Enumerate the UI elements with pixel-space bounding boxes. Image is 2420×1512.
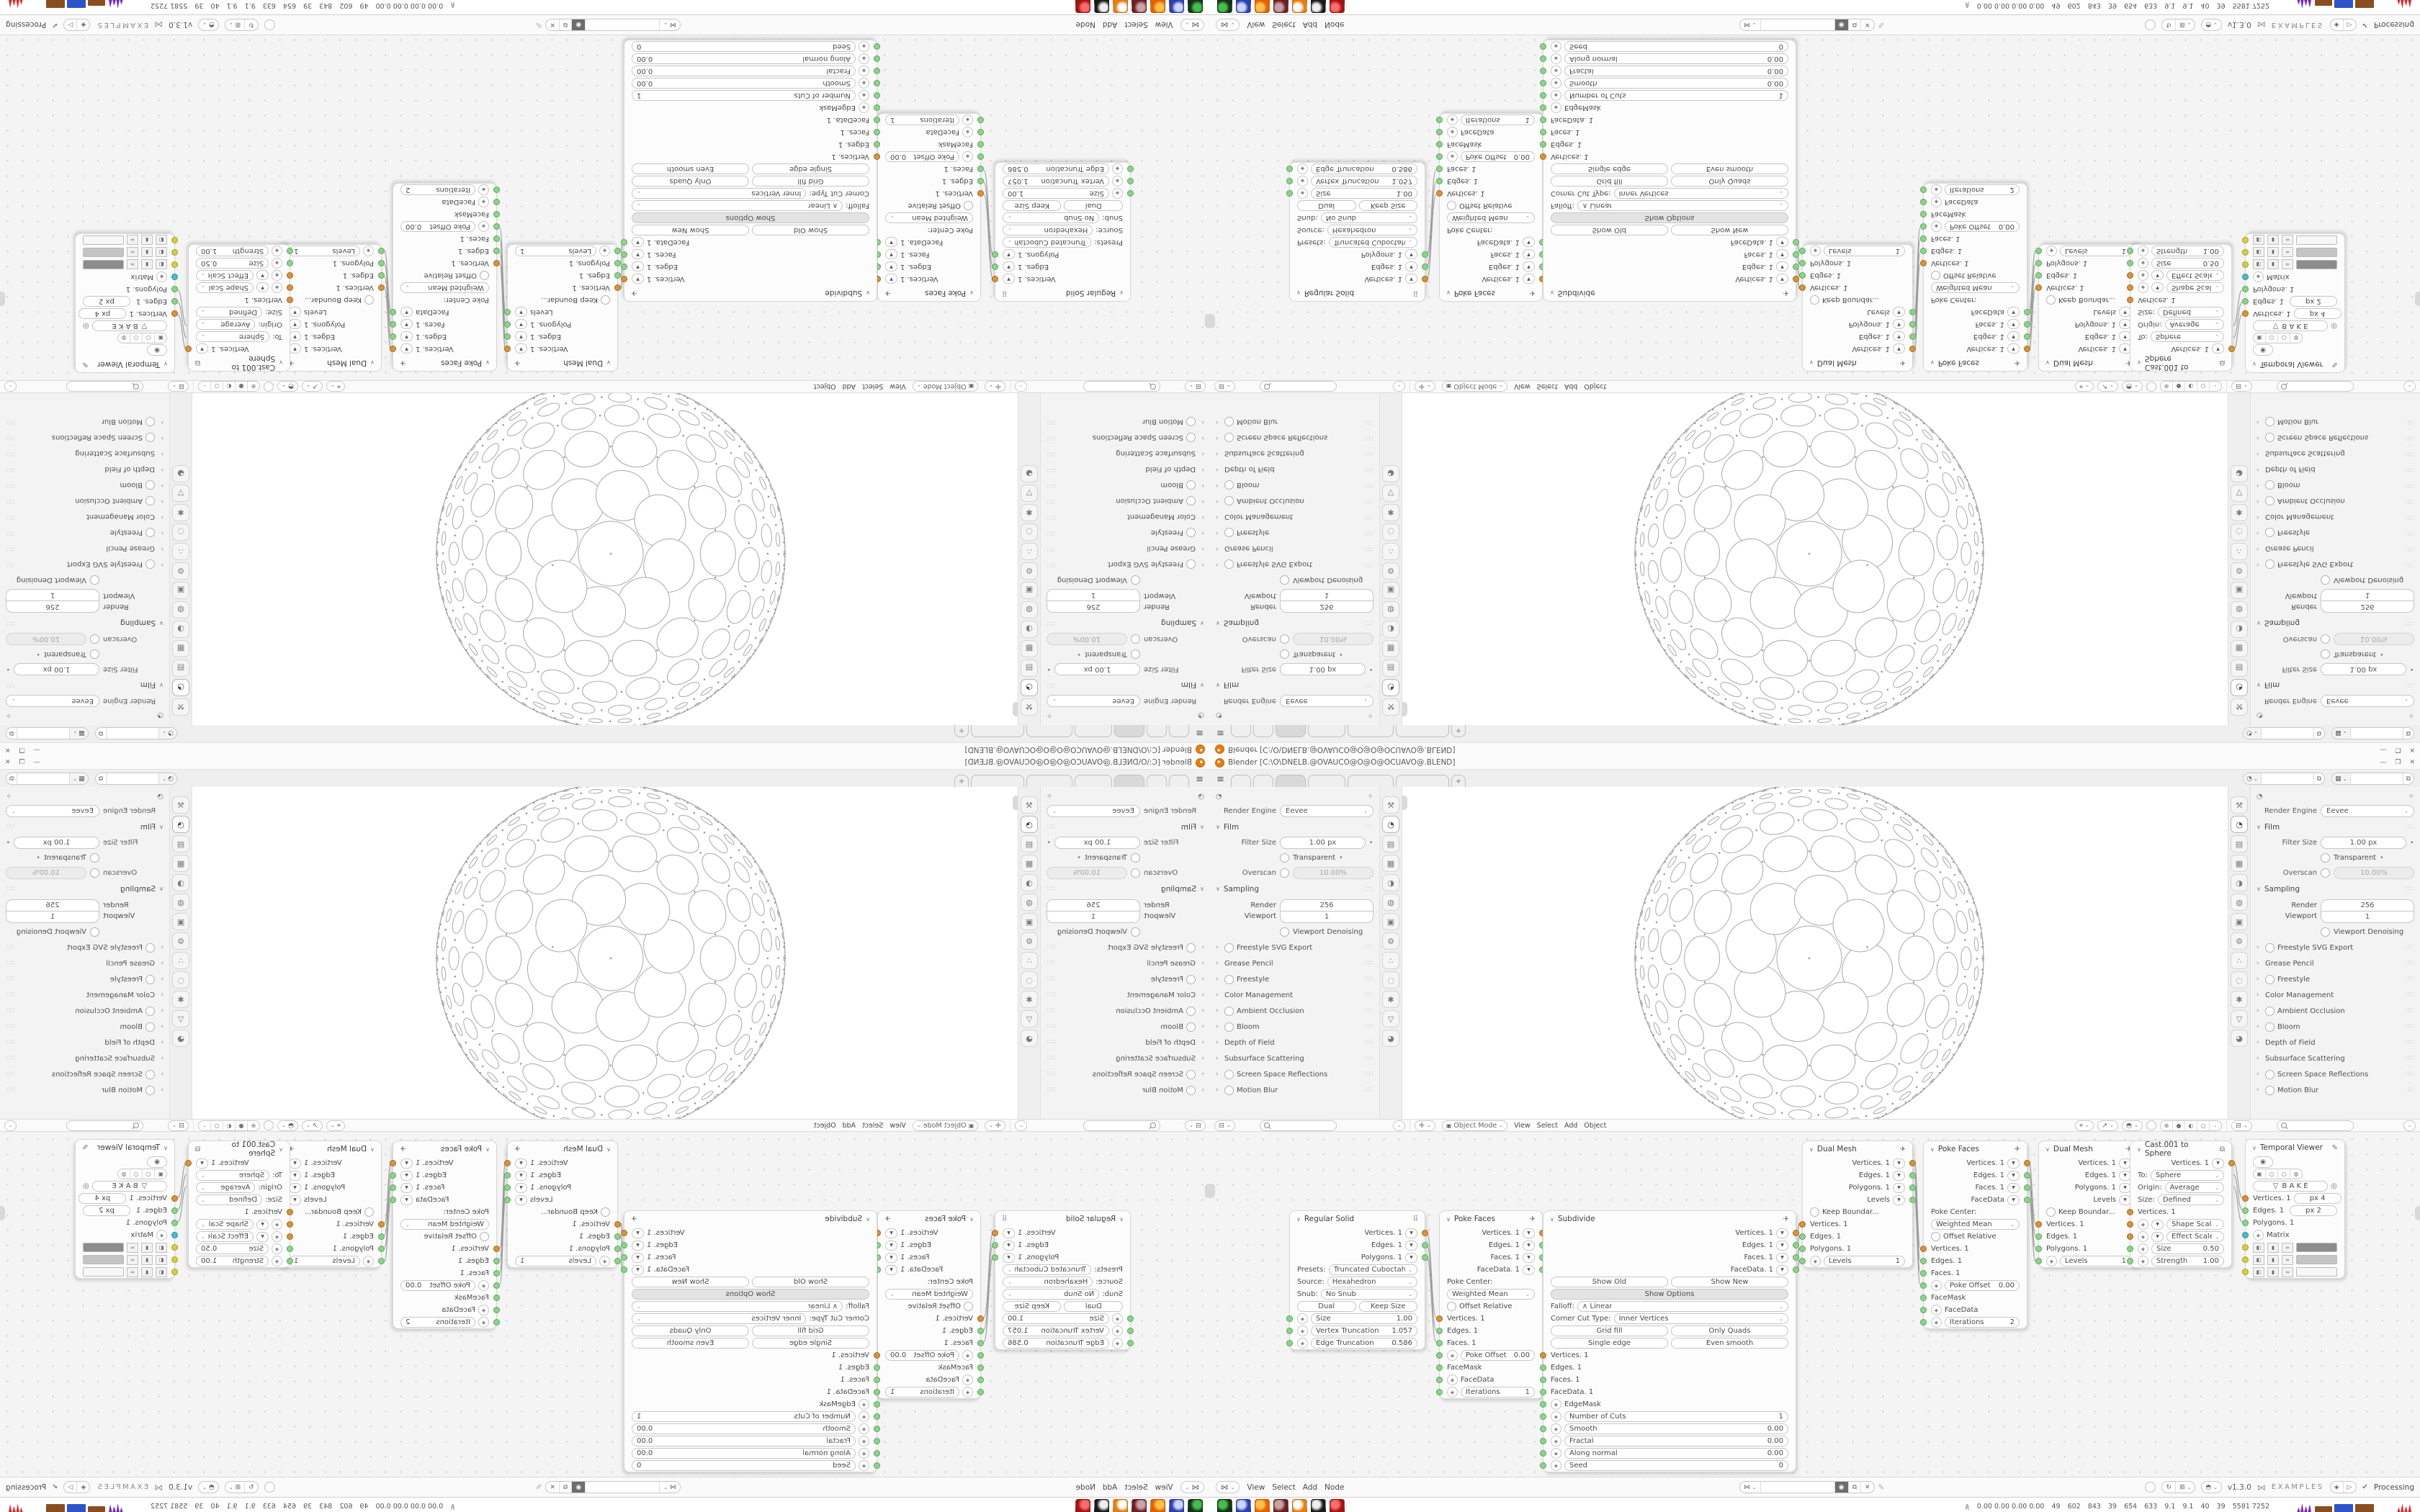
collapse-icon[interactable]: ∨: [1296, 290, 1301, 297]
node-poke-faces[interactable]: ∨Poke Faces✈Vertices. 1▼Edges. 1▼Faces. …: [393, 1140, 497, 1329]
node-tree-name-field[interactable]: [1761, 1482, 1835, 1493]
collapsed-panel-row[interactable]: ›Color Management∷∷: [1210, 509, 1379, 525]
node-editor-right-handle[interactable]: [0, 292, 5, 306]
swatch-tool-icon[interactable]: ≈: [127, 260, 138, 270]
properties-filter-button[interactable]: ⌄: [4, 1120, 17, 1131]
collapse-icon[interactable]: ∨: [866, 290, 870, 297]
collapsed-panel-row[interactable]: ›Freestyle SVG Export∷∷: [1041, 940, 1210, 955]
dropdown[interactable]: Shape Scale⌄: [2166, 282, 2224, 293]
modifiers-tab[interactable]: ⚙: [2231, 932, 2248, 950]
workspace-tab[interactable]: [1147, 725, 1167, 737]
object-tab[interactable]: ▣: [1382, 582, 1399, 599]
checkbox[interactable]: [2321, 868, 2330, 878]
node-header[interactable]: ∨Cast.001 to Sphere⧉: [2130, 1141, 2231, 1157]
properties-filter-button[interactable]: ⌄: [2403, 382, 2416, 392]
snapping-controls[interactable]: ↻ ⊞ ⌄: [2161, 19, 2195, 31]
checkbox[interactable]: [964, 201, 973, 210]
collapse-icon[interactable]: ∨: [606, 360, 611, 366]
ruby-taskbar-icon[interactable]: [1075, 1499, 1090, 1512]
toggle-button[interactable]: Show Options: [1551, 1289, 1788, 1300]
node-menu-node[interactable]: Node: [1076, 21, 1095, 30]
scene-selector[interactable]: ◔⌄ ⧉: [95, 727, 177, 739]
object-data-tab[interactable]: ▽: [2231, 1010, 2248, 1027]
unlink-tree-button[interactable]: ✕: [1861, 1482, 1874, 1493]
section-header[interactable]: ∨Film∷∷: [2251, 819, 2420, 835]
collapsed-panel-row[interactable]: ›Subsurface Scattering∷∷: [0, 1050, 169, 1066]
output-dropdown[interactable]: ▼: [632, 262, 644, 272]
value-toggle[interactable]: ◈: [1447, 1387, 1458, 1398]
overlays-button[interactable]: ↗⌄: [302, 382, 323, 392]
wireframe-icon[interactable]: ⊕: [2161, 1121, 2173, 1130]
axis-dropdown[interactable]: ▼: [2151, 271, 2164, 281]
value-toggle[interactable]: ◈: [859, 41, 869, 52]
swatch-tool-icon[interactable]: ≈: [2282, 248, 2293, 258]
node-header[interactable]: ∨Dual Mesh✈: [282, 1141, 381, 1157]
node-header[interactable]: ∨Poke Faces✈: [393, 1141, 496, 1157]
constraints-tab[interactable]: ✱: [2231, 504, 2248, 521]
node-menu-view[interactable]: View: [1155, 21, 1173, 30]
collapsed-panel-row[interactable]: ›Bloom∷∷: [2251, 1019, 2420, 1035]
dropdown[interactable]: Hexahedron⌄: [1003, 1277, 1093, 1287]
checkbox[interactable]: [2321, 634, 2330, 644]
collapse-icon[interactable]: ∨: [969, 290, 974, 297]
node-editor-right-handle[interactable]: [2415, 1206, 2420, 1220]
copy-view-layer-button[interactable]: ⧉: [6, 773, 17, 784]
dropdown[interactable]: Weighted Mean⌄: [1447, 212, 1535, 223]
dropdown[interactable]: Weighted Mean⌄: [400, 1219, 489, 1230]
view-layer-icon[interactable]: ▦⌄: [69, 773, 87, 784]
value-toggle[interactable]: ◈: [1551, 90, 1561, 101]
checkbox[interactable]: [1186, 1007, 1196, 1016]
collapsed-panel-row[interactable]: ›Freestyle∷∷: [1210, 525, 1379, 541]
stack-field-top[interactable]: 256: [1047, 601, 1140, 613]
physics-tab[interactable]: ◌: [1021, 971, 1038, 989]
output-dropdown[interactable]: ▼: [2007, 320, 2020, 330]
checkbox[interactable]: [1224, 560, 1234, 570]
properties-filter-button[interactable]: ⌄: [1393, 1120, 1405, 1131]
dropdown[interactable]: Defined⌄: [2158, 1194, 2224, 1205]
section-header[interactable]: ∨Sampling∷∷: [1210, 881, 1379, 897]
swatch-tool-icon[interactable]: ◧: [156, 1255, 167, 1265]
collapse-icon[interactable]: ∨: [2045, 360, 2050, 366]
stack-field-bottom[interactable]: 1: [2321, 911, 2414, 923]
output-dropdown[interactable]: ▼: [400, 320, 413, 330]
output-dropdown[interactable]: ▼: [1893, 307, 1905, 318]
checkbox[interactable]: [1131, 634, 1140, 644]
color-swatch[interactable]: [83, 1267, 124, 1277]
section-header[interactable]: ∨Film∷∷: [1210, 677, 1379, 693]
dropdown[interactable]: Truncated Cuboctahedron⌄: [1329, 1264, 1417, 1275]
chevron-up-icon[interactable]: ≪: [449, 1503, 457, 1510]
toggle-button[interactable]: Show New: [1671, 225, 1788, 235]
scene-icon[interactable]: ◔⌄: [158, 773, 176, 784]
status-tools[interactable]: ◈ ▷: [2330, 19, 2357, 31]
node-menu-add[interactable]: Add: [1303, 1483, 1317, 1492]
collapsed-panel-row[interactable]: ›Ambient Occlusion∷∷: [1041, 493, 1210, 509]
collapsed-panel-row[interactable]: ›Freestyle∷∷: [1041, 525, 1210, 541]
output-dropdown[interactable]: ▼: [1523, 1228, 1535, 1238]
output-dropdown[interactable]: ▼: [632, 238, 644, 248]
overlays-button[interactable]: ↗⌄: [2097, 1120, 2118, 1131]
properties-filter-button[interactable]: ⌄: [4, 382, 17, 392]
checkbox[interactable]: [145, 1070, 155, 1079]
collapsed-panel-row[interactable]: ›Freestyle SVG Export∷∷: [2251, 940, 2420, 955]
copy-tree-button[interactable]: ⧉: [1849, 19, 1861, 30]
node-header[interactable]: ∨Regular Solid⠿: [1290, 1211, 1425, 1227]
node-header[interactable]: ∨Cast.001 to Sphere⧉: [189, 1141, 290, 1157]
active-tool-tab[interactable]: ⚒: [2231, 796, 2248, 814]
editor-type-button[interactable]: ⊟⌄: [1214, 382, 1235, 392]
terminal-taskbar-icon[interactable]: [1217, 1499, 1232, 1512]
collapse-icon[interactable]: ∨: [1296, 1216, 1301, 1223]
world-tab[interactable]: ◍: [1021, 601, 1038, 618]
checkbox[interactable]: [2265, 481, 2275, 490]
output-dropdown[interactable]: ▼: [289, 320, 301, 330]
number-field[interactable]: Edge Truncation0.586: [1311, 163, 1417, 174]
toggle-button[interactable]: Keep Size: [1359, 200, 1418, 211]
number-field[interactable]: Edge Truncation0.586: [1311, 1338, 1417, 1349]
rendered-icon[interactable]: ○: [210, 382, 223, 392]
output-dropdown[interactable]: ▼: [2007, 1195, 2020, 1205]
viewport-menu-object[interactable]: Object: [814, 383, 836, 391]
chevron-up-icon[interactable]: ≪: [449, 2, 457, 9]
output-dropdown[interactable]: ▼: [1893, 1158, 1905, 1169]
checkbox[interactable]: [1186, 560, 1196, 570]
value-toggle[interactable]: ◈: [1297, 1313, 1308, 1324]
workspace-tab[interactable]: [1253, 725, 1273, 737]
value-toggle[interactable]: ◈: [1931, 221, 1942, 232]
checkbox[interactable]: [90, 575, 99, 585]
status-tools[interactable]: ◈ ▷: [2330, 1481, 2357, 1493]
value-toggle[interactable]: ◈: [859, 1411, 869, 1422]
properties-search-input[interactable]: [1083, 1120, 1160, 1131]
proportional-icon[interactable]: ◓ ⌄: [199, 19, 218, 30]
value-toggle[interactable]: ◈: [1551, 102, 1561, 113]
mode-icon-button[interactable]: ✛⌄: [1415, 1120, 1435, 1131]
media-player-taskbar-icon[interactable]: [1131, 0, 1147, 13]
pixel-field[interactable]: px 4: [79, 308, 126, 319]
section-header[interactable]: ∨Film∷∷: [0, 819, 169, 835]
rendered-icon[interactable]: ○: [2197, 382, 2210, 392]
collapse-icon[interactable]: ∨: [2045, 1146, 2050, 1153]
floppy-64-taskbar-icon[interactable]: [1236, 0, 1251, 13]
workspace-tab[interactable]: [1026, 775, 1072, 787]
pin-icon[interactable]: ✎: [1878, 1483, 1885, 1492]
node-temporal-viewer[interactable]: ∨Temporal Viewer✎◉▣○○◍▽B A K E◎Vertices.…: [75, 1139, 175, 1279]
number-field[interactable]: Along normal0.00: [632, 1448, 856, 1459]
render-tab[interactable]: ◔: [2231, 816, 2248, 833]
value-toggle[interactable]: ◈: [1297, 163, 1308, 174]
physics-tab[interactable]: ◌: [1021, 523, 1038, 541]
material-preview-icon[interactable]: ◐: [223, 382, 235, 392]
output-dropdown[interactable]: ▼: [632, 1241, 644, 1251]
swatch-tool-icon[interactable]: ≈: [127, 1243, 138, 1253]
dropdown[interactable]: Average⌄: [2165, 319, 2224, 330]
number-field[interactable]: Iterations1: [1461, 1387, 1535, 1398]
shading-dropdown[interactable]: ⌄: [2210, 382, 2221, 392]
viewport-3d[interactable]: [192, 787, 1018, 1119]
value-toggle[interactable]: ◈: [859, 1436, 869, 1446]
gimp-taskbar-icon[interactable]: [1094, 0, 1109, 13]
value-toggle[interactable]: ◈: [1112, 1338, 1123, 1349]
circle-view-1-icon[interactable]: ○: [142, 1169, 154, 1179]
stack-field-bottom[interactable]: 1: [1047, 590, 1140, 602]
stack-field-top[interactable]: 256: [6, 601, 99, 613]
number-field[interactable]: Number of Cuts1: [1564, 1411, 1788, 1422]
snap-icon[interactable]: ↻: [2162, 1482, 2176, 1493]
stack-field-top[interactable]: 256: [1280, 899, 1373, 912]
modifiers-tab[interactable]: ⚙: [2231, 562, 2248, 580]
modifiers-tab[interactable]: ⚙: [1021, 562, 1038, 580]
node-tool-icon[interactable]: ◈: [2331, 1482, 2344, 1493]
sphere-view-icon[interactable]: ◍: [2290, 333, 2302, 343]
collapsed-panel-row[interactable]: ›Color Management∷∷: [2251, 509, 2420, 525]
circle-view-2-icon[interactable]: ○: [2278, 1169, 2290, 1179]
xray-button[interactable]: ◓⌄: [2122, 382, 2143, 392]
checkbox[interactable]: [1810, 1207, 1819, 1217]
snap-target-icon[interactable]: ⊞ ⌄: [225, 1482, 244, 1493]
viewport-3d[interactable]: [1402, 393, 2228, 725]
workspace-tab[interactable]: [971, 775, 1024, 787]
gizmo-button[interactable]: ⌖⌄: [326, 1120, 345, 1131]
physics-tab[interactable]: ◌: [1382, 523, 1399, 541]
checkbox[interactable]: [2321, 853, 2330, 863]
snap-icon[interactable]: ↻: [244, 1482, 258, 1493]
world-tab[interactable]: ◍: [1382, 601, 1399, 618]
swatch-tool-icon[interactable]: ≈: [127, 1255, 138, 1265]
workspace-tab[interactable]: [1147, 775, 1167, 787]
dropdown[interactable]: Effect Scale⌄: [2166, 1231, 2224, 1242]
pin-icon[interactable]: ✧: [2408, 712, 2414, 720]
checkbox[interactable]: [1131, 927, 1140, 937]
copy-view-layer-button[interactable]: ⧉: [2403, 773, 2414, 784]
firefox-taskbar-icon[interactable]: [1255, 0, 1270, 13]
render-tab[interactable]: ◔: [172, 679, 189, 696]
view-layer-icon[interactable]: ▦⌄: [69, 728, 87, 739]
world-tab[interactable]: ◍: [172, 601, 189, 618]
swatch-tool-icon[interactable]: ◧: [156, 1267, 167, 1277]
status-circle-button[interactable]: [2145, 1482, 2156, 1493]
object-tab[interactable]: ▣: [2231, 582, 2248, 599]
checkbox[interactable]: [145, 481, 155, 490]
firefox-taskbar-icon[interactable]: [1255, 1499, 1270, 1512]
bake-button[interactable]: ▽B A K E: [2253, 1181, 2328, 1192]
scene-name-field[interactable]: [107, 728, 158, 739]
node-editor[interactable]: ∨Regular Solid⠿Vertices. 1▼Edges. 1▼Poly…: [1210, 1131, 2420, 1477]
collapsed-panel-row[interactable]: ›Ambient Occlusion∷∷: [0, 1003, 169, 1019]
value-toggle[interactable]: ◈: [1931, 1280, 1942, 1291]
texture-tab[interactable]: ◕: [172, 465, 189, 482]
collapse-icon[interactable]: ∨: [2252, 361, 2257, 368]
collapsed-panel-row[interactable]: ›Depth of Field∷∷: [1041, 462, 1210, 477]
viewport-menu-view[interactable]: View: [1514, 383, 1531, 391]
node-cast-001-to-sphere[interactable]: ∨Cast.001 to Sphere⧉Vertices. 1▼To:Spher…: [2130, 1140, 2232, 1268]
collapsed-panel-row[interactable]: ›Freestyle SVG Export∷∷: [2251, 557, 2420, 572]
node-poke-faces[interactable]: ∨Poke Faces✈Vertices. 1▼Edges. 1▼Faces. …: [1923, 1140, 2027, 1329]
prop-value-field[interactable]: 1.00 px: [1054, 837, 1140, 849]
proportional-icon[interactable]: ◓ ⌄: [2202, 19, 2221, 30]
checkbox[interactable]: [1224, 528, 1234, 538]
collapsed-panel-row[interactable]: ›Motion Blur∷∷: [1210, 1082, 1379, 1098]
cursor-tool-icon[interactable]: ▷: [64, 19, 76, 30]
scene-icon[interactable]: ◔⌄: [2244, 728, 2262, 739]
number-field[interactable]: Size1.00: [1003, 188, 1109, 199]
viewport-toolbar-handle[interactable]: [1402, 796, 1407, 810]
node-dual-mesh[interactable]: ∨Dual Mesh✈Vertices. 1▼Edges. 1▼Polygons…: [2038, 1140, 2139, 1268]
toggle-button[interactable]: Show New: [632, 1277, 749, 1287]
value-toggle[interactable]: ◈: [859, 102, 869, 113]
value-toggle[interactable]: ◈: [272, 246, 282, 256]
swatch-tool-icon[interactable]: ◧: [2253, 235, 2264, 246]
mode-icon-button[interactable]: ✛⌄: [985, 382, 1005, 392]
node-header[interactable]: ∨Dual Mesh✈: [1803, 1141, 1912, 1157]
solid-icon[interactable]: ●: [2173, 1121, 2185, 1130]
viewport-toolbar-handle[interactable]: [1402, 702, 1407, 716]
node-menu-select[interactable]: Select: [1124, 1483, 1147, 1492]
texture-tab[interactable]: ◕: [2231, 465, 2248, 482]
output-dropdown[interactable]: ▼: [400, 1183, 413, 1193]
snap-target-icon[interactable]: ⊞ ⌄: [2176, 19, 2195, 30]
number-field[interactable]: Levels1: [2060, 246, 2131, 256]
chevron-up-icon[interactable]: ≪: [1963, 2, 1971, 9]
value-toggle[interactable]: ◈: [272, 282, 282, 293]
add-workspace-button[interactable]: +: [954, 725, 969, 737]
terminal-taskbar-icon[interactable]: [1217, 0, 1232, 13]
node-editor-left-handle[interactable]: [1205, 1184, 1210, 1198]
wireframe-icon[interactable]: ⊕: [247, 1121, 259, 1130]
collapsed-panel-row[interactable]: ›Grease Pencil∷∷: [2251, 541, 2420, 557]
number-field[interactable]: Poke Offset0.00: [400, 221, 475, 232]
collapsed-panel-row[interactable]: ›Depth of Field∷∷: [2251, 1035, 2420, 1050]
dropdown[interactable]: Defined⌄: [2158, 307, 2224, 318]
prop-value-field[interactable]: 1.00 px: [1280, 837, 1366, 849]
toggle-button[interactable]: Single edge: [1551, 1338, 1668, 1349]
output-dropdown[interactable]: ▼: [196, 1158, 208, 1169]
value-toggle[interactable]: ◈: [1112, 163, 1123, 174]
workspace-tab[interactable]: [1253, 775, 1273, 787]
output-tab[interactable]: ▤: [1382, 660, 1399, 677]
node-editor-type-button[interactable]: ⋈⌄: [1180, 1481, 1204, 1493]
value-toggle[interactable]: ◈: [962, 1387, 973, 1398]
output-dropdown[interactable]: ▼: [1893, 1183, 1905, 1193]
checkbox[interactable]: [964, 1302, 973, 1311]
number-field[interactable]: Iterations1: [1461, 114, 1535, 125]
number-field[interactable]: Number of Cuts1: [632, 1411, 856, 1422]
checkbox[interactable]: [1131, 649, 1140, 659]
output-dropdown[interactable]: ▼: [632, 1228, 644, 1238]
texture-tab[interactable]: ◕: [2231, 1030, 2248, 1047]
axis-dropdown[interactable]: ▼: [256, 1232, 269, 1242]
collapsed-panel-row[interactable]: ›Grease Pencil∷∷: [2251, 955, 2420, 971]
node-tool-icon[interactable]: ◈: [2331, 19, 2344, 30]
stack-field-top[interactable]: 256: [2321, 899, 2414, 912]
collapsed-panel-row[interactable]: ›Screen Space Reflections∷∷: [1041, 1066, 1210, 1082]
swatch-tool-icon[interactable]: ▮: [141, 1255, 153, 1265]
checkbox[interactable]: [145, 975, 155, 984]
pixel-field[interactable]: px 4: [2294, 308, 2341, 319]
value-toggle[interactable]: ◈: [599, 1256, 610, 1266]
copy-tree-button[interactable]: ⧉: [559, 1482, 571, 1493]
value-toggle[interactable]: ◈: [962, 1350, 973, 1361]
dropdown[interactable]: Inner Vertices⌄: [632, 1313, 806, 1324]
node-poke-faces[interactable]: ∨Poke Faces✈Vertices. 1▼Edges. 1▼Faces. …: [877, 113, 981, 302]
checkbox[interactable]: [90, 868, 99, 878]
color-swatch[interactable]: [2296, 1243, 2337, 1252]
value-toggle[interactable]: ◈: [2046, 246, 2057, 256]
viewport-menu-add[interactable]: Add: [843, 383, 856, 391]
properties-filter-button[interactable]: ⌄: [2403, 1120, 2416, 1131]
toggle-button[interactable]: Grid fill: [1551, 176, 1668, 186]
properties-search-input[interactable]: [66, 382, 143, 392]
output-dropdown[interactable]: ▼: [2212, 1158, 2224, 1169]
swatch-tool-icon[interactable]: ≈: [127, 1267, 138, 1277]
pin-icon[interactable]: ✧: [2408, 793, 2414, 801]
solid-icon[interactable]: ●: [235, 1121, 247, 1130]
object-tab[interactable]: ▣: [172, 582, 189, 599]
pixel-field[interactable]: px 4: [2294, 1193, 2341, 1204]
viewport-toolbar-handle[interactable]: [1013, 796, 1018, 810]
toggle-button[interactable]: Grid fill: [752, 176, 869, 186]
media-player-taskbar-icon[interactable]: [1273, 0, 1289, 13]
dropdown[interactable]: Sphere⌄: [196, 331, 269, 342]
node-header[interactable]: ∨Subdivide✈: [1543, 1211, 1796, 1227]
swatch-tool-icon[interactable]: ▮: [2267, 1255, 2279, 1265]
pin-icon[interactable]: ✧: [1047, 793, 1052, 801]
collapsed-panel-row[interactable]: ›Ambient Occlusion∷∷: [0, 493, 169, 509]
output-dropdown[interactable]: ▼: [400, 332, 413, 342]
status-tools[interactable]: ◈ ▷: [63, 19, 90, 31]
node-menu-node[interactable]: Node: [1325, 21, 1344, 30]
shading-mode-switch[interactable]: ⊕●◐○⌄: [2160, 1120, 2222, 1131]
swatch-tool-icon[interactable]: ▮: [141, 248, 153, 258]
swatch-tool-icon[interactable]: ▮: [2267, 1267, 2279, 1277]
snap-target-icon[interactable]: ⊞ ⌄: [225, 19, 244, 30]
swatch-tool-icon[interactable]: ▮: [141, 260, 153, 270]
collapse-icon[interactable]: ∨: [1550, 1216, 1554, 1223]
collapse-icon[interactable]: ∨: [2252, 1145, 2257, 1151]
properties-search-input[interactable]: [1260, 382, 1337, 392]
workspace-tab[interactable]: [1308, 725, 1345, 737]
collapsed-panel-row[interactable]: ›Freestyle∷∷: [0, 525, 169, 541]
checkbox[interactable]: [1280, 649, 1289, 659]
editor-type-button[interactable]: ⊟⌄: [168, 1120, 189, 1131]
collapsed-panel-row[interactable]: ›Freestyle SVG Export∷∷: [0, 940, 169, 955]
toggle-button[interactable]: Show Old: [1551, 1277, 1668, 1287]
node-temporal-viewer[interactable]: ∨Temporal Viewer✎◉▣○○◍▽B A K E◎Vertices.…: [2245, 233, 2345, 373]
copy-scene-button[interactable]: ⧉: [96, 773, 107, 784]
checkbox[interactable]: [1447, 1302, 1456, 1311]
app-menu-icon[interactable]: ≡: [1196, 727, 1204, 738]
checkbox[interactable]: [1224, 1070, 1234, 1079]
add-workspace-button[interactable]: +: [954, 775, 969, 787]
view-toggles[interactable]: ▣○○◍: [117, 1169, 167, 1179]
proportional-icon[interactable]: ◓ ⌄: [2202, 1482, 2221, 1493]
swatch-tool-icon[interactable]: ◧: [156, 260, 167, 270]
color-swatch[interactable]: [2296, 1267, 2337, 1277]
view-layer-selector[interactable]: ▦⌄ ⧉: [6, 773, 89, 785]
node-tree-icon[interactable]: ⋈ ⌄: [659, 1482, 680, 1493]
particles-tab[interactable]: ∴: [2231, 543, 2248, 560]
node-tree-name-field[interactable]: [585, 19, 659, 30]
collapsed-panel-row[interactable]: ›Motion Blur∷∷: [1041, 1082, 1210, 1098]
viewport-menu-object[interactable]: Object: [814, 1122, 836, 1130]
number-field[interactable]: Levels1: [289, 246, 360, 256]
number-field[interactable]: Strength1.00: [2151, 246, 2224, 256]
output-dropdown[interactable]: ▼: [632, 1253, 644, 1263]
node-header[interactable]: ∨Dual Mesh✈: [508, 1141, 617, 1157]
app-menu-icon[interactable]: ≡: [1196, 774, 1204, 785]
dropdown[interactable]: Sphere⌄: [2151, 1170, 2224, 1181]
